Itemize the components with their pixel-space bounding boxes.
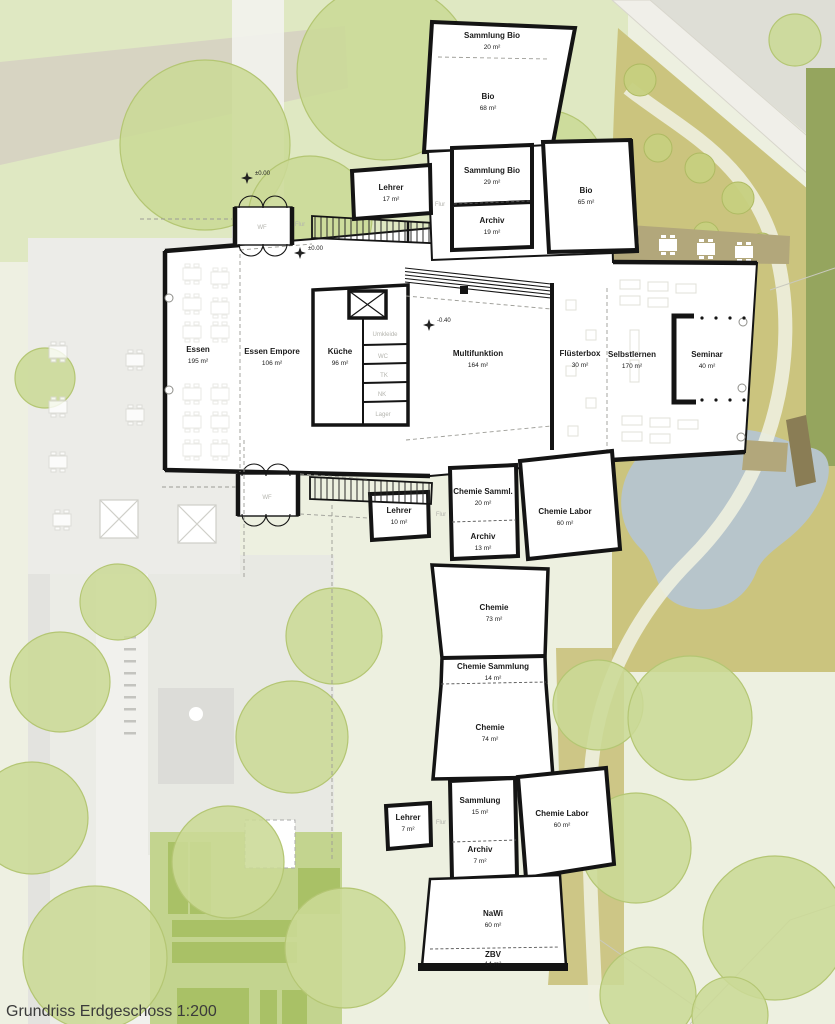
- room-label-selbstlernen: Selbstlernen: [608, 350, 656, 359]
- room-area-essen: 195 m²: [188, 358, 209, 365]
- room-label-lehrer-2: Lehrer: [387, 506, 412, 515]
- garden-shed: [158, 688, 234, 784]
- room-label-chemie-samml: Chemie Samml.: [453, 487, 513, 496]
- room-area-nawi: 60 m²: [485, 922, 502, 929]
- room-area-chemie-labor-1: 60 m²: [557, 520, 574, 527]
- room-label-archiv-1: Archiv: [480, 216, 505, 225]
- room-area-selbstlernen: 170 m²: [622, 363, 643, 370]
- label-flur-4: Flur: [436, 820, 446, 826]
- label-nk: NK: [378, 392, 386, 398]
- room-area-archiv-3: 7 m²: [474, 858, 488, 865]
- level-label-1: ±0.00: [255, 171, 271, 177]
- room-label-bio-1: Bio: [482, 92, 495, 101]
- room-label-chemie-labor-1: Chemie Labor: [538, 507, 591, 516]
- label-wc: WC: [378, 354, 389, 360]
- room-area-bio-2: 65 m²: [578, 199, 595, 206]
- room-area-fluesterbox: 30 m²: [572, 362, 589, 369]
- room-area-chemie-samml: 20 m²: [475, 500, 492, 507]
- room-label-seminar: Seminar: [691, 350, 723, 359]
- room-area-chemie-1: 73 m²: [486, 616, 503, 623]
- room-area-sammlung-bio-2: 29 m²: [484, 179, 501, 186]
- label-flur-2: Flur: [435, 202, 445, 208]
- room-area-chemie-labor-2: 60 m²: [554, 822, 571, 829]
- label-lager: Lager: [375, 412, 390, 418]
- site-plan-svg: ±0.00 ±0.00 -0.40 Sammlung Bio 20 m² Bio…: [0, 0, 835, 1024]
- room-label-lehrer-3: Lehrer: [396, 813, 421, 822]
- room-area-lehrer-1: 17 m²: [383, 196, 400, 203]
- room-area-lehrer-3: 7 m²: [402, 826, 416, 833]
- room-area-bio-1: 68 m²: [480, 105, 497, 112]
- room-label-essen: Essen: [186, 345, 210, 354]
- room-area-multifunktion: 164 m²: [468, 362, 489, 369]
- floor-plan-page: ±0.00 ±0.00 -0.40 Sammlung Bio 20 m² Bio…: [0, 0, 835, 1024]
- room-label-essen-empore: Essen Empore: [244, 347, 300, 356]
- chemie-tower: [432, 565, 553, 779]
- room-label-fluesterbox: Flüsterbox: [560, 349, 601, 358]
- room-label-bio-2: Bio: [580, 186, 593, 195]
- room-area-sammlung-bio-1: 20 m²: [484, 44, 501, 51]
- room-label-zbv: ZBV: [485, 950, 502, 959]
- room-label-multifunktion: Multifunktion: [453, 349, 503, 358]
- room-area-chemie-2: 74 m²: [482, 736, 499, 743]
- room-label-chemie-2: Chemie: [476, 723, 505, 732]
- room-label-kueche: Küche: [328, 347, 353, 356]
- room-area-archiv-1: 19 m²: [484, 229, 501, 236]
- room-area-archiv-2: 13 m²: [475, 545, 492, 552]
- room-label-nawi: NaWi: [483, 909, 503, 918]
- label-wf-south: WF: [262, 495, 272, 501]
- room-label-lehrer-1: Lehrer: [379, 183, 404, 192]
- room-area-sammlung: 15 m²: [472, 809, 489, 816]
- room-label-sammlung-bio-2: Sammlung Bio: [464, 166, 520, 175]
- label-flur-1: Flur: [295, 222, 305, 228]
- room-label-chemie-labor-2: Chemie Labor: [535, 809, 588, 818]
- label-flur-3: Flur: [436, 512, 446, 518]
- room-label-archiv-3: Archiv: [468, 845, 493, 854]
- room-label-chemie-sammlung: Chemie Sammlung: [457, 662, 529, 671]
- room-area-kueche: 96 m²: [332, 360, 349, 367]
- label-umkleide: Umkleide: [372, 332, 398, 338]
- room-area-essen-empore: 106 m²: [262, 360, 283, 367]
- label-wf-north: WF: [257, 225, 267, 231]
- label-tk: TK: [380, 373, 388, 379]
- room-area-chemie-sammlung: 14 m²: [485, 675, 502, 682]
- room-label-sammlung-bio-1: Sammlung Bio: [464, 31, 520, 40]
- room-area-lehrer-2: 10 m²: [391, 519, 408, 526]
- room-area-zbv: 14 m²: [485, 961, 502, 968]
- plan-caption: Grundriss Erdgeschoss 1:200: [6, 1003, 217, 1020]
- level-label-3: -0.40: [437, 318, 451, 324]
- room-label-sammlung: Sammlung: [460, 796, 501, 805]
- room-area-seminar: 40 m²: [699, 363, 716, 370]
- level-label-2: ±0.00: [308, 246, 324, 252]
- room-label-chemie-1: Chemie: [480, 603, 509, 612]
- room-label-archiv-2: Archiv: [471, 532, 496, 541]
